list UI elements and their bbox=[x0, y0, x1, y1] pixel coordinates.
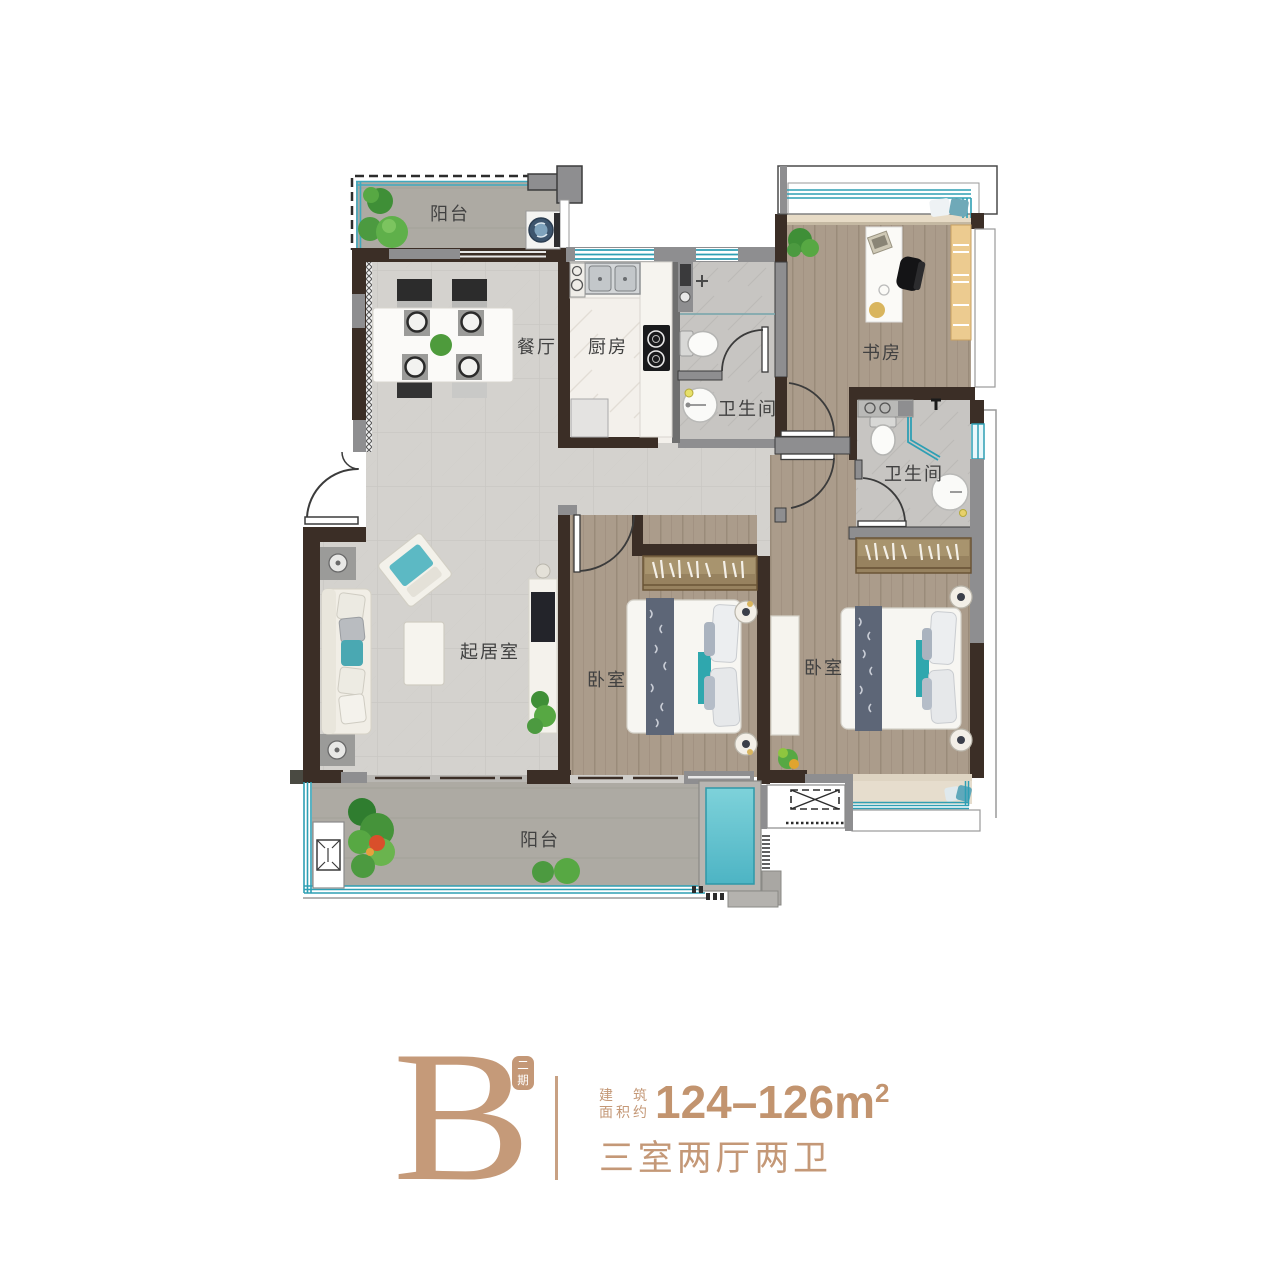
svg-text:卫生间: 卫生间 bbox=[718, 399, 778, 419]
svg-text:餐厅: 餐厅 bbox=[517, 337, 557, 357]
svg-text:124–126m2: 124–126m2 bbox=[655, 1076, 889, 1128]
svg-text:起居室: 起居室 bbox=[460, 642, 520, 662]
svg-text:卫生间: 卫生间 bbox=[884, 464, 944, 484]
svg-text:卧室: 卧室 bbox=[804, 658, 844, 678]
svg-text:面积约: 面积约 bbox=[599, 1104, 650, 1120]
svg-text:厨房: 厨房 bbox=[588, 337, 628, 357]
svg-text:期: 期 bbox=[517, 1074, 529, 1087]
svg-text:阳台: 阳台 bbox=[520, 830, 560, 850]
svg-text:卧室: 卧室 bbox=[587, 670, 627, 690]
svg-text:三室两厅两卫: 三室两厅两卫 bbox=[599, 1139, 832, 1178]
svg-text:二: 二 bbox=[517, 1060, 529, 1072]
svg-text:阳台: 阳台 bbox=[430, 204, 470, 224]
svg-text:B: B bbox=[393, 1013, 532, 1220]
svg-text:书房: 书房 bbox=[862, 343, 902, 363]
